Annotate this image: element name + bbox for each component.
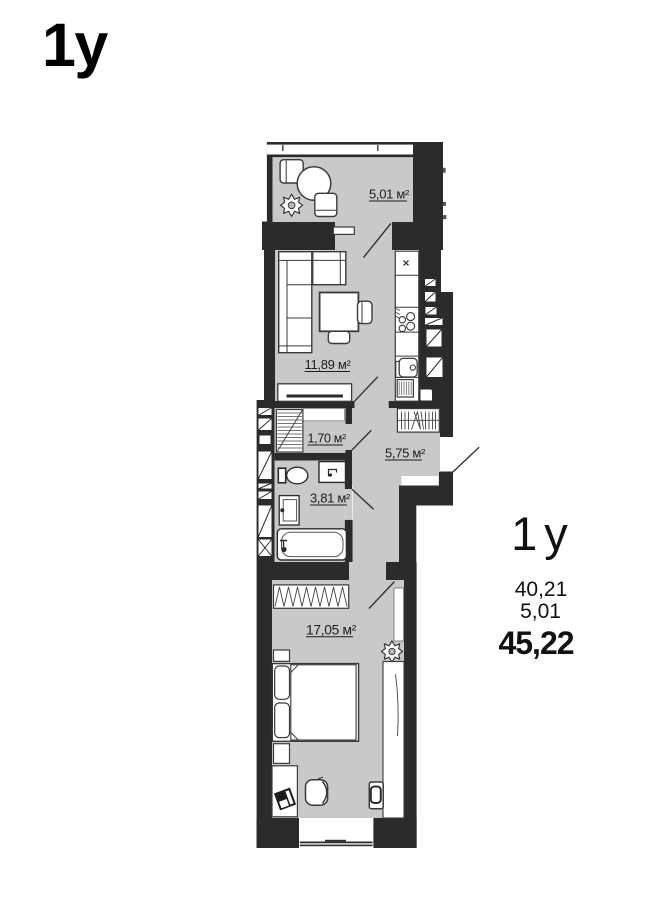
svg-text:5,75 м²: 5,75 м² (385, 446, 426, 461)
svg-text:3,81 м²: 3,81 м² (310, 491, 351, 506)
svg-text:17,05 м²: 17,05 м² (306, 623, 357, 638)
svg-text:40,21: 40,21 (515, 578, 568, 601)
svg-text:5,01 м²: 5,01 м² (369, 187, 410, 202)
svg-text:1у: 1у (42, 11, 108, 79)
svg-text:1у: 1у (511, 507, 575, 560)
svg-text:1,70 м²: 1,70 м² (308, 432, 347, 446)
svg-text:11,89 м²: 11,89 м² (305, 357, 352, 372)
svg-text:45,22: 45,22 (498, 625, 573, 661)
svg-text:5,01: 5,01 (520, 600, 561, 623)
